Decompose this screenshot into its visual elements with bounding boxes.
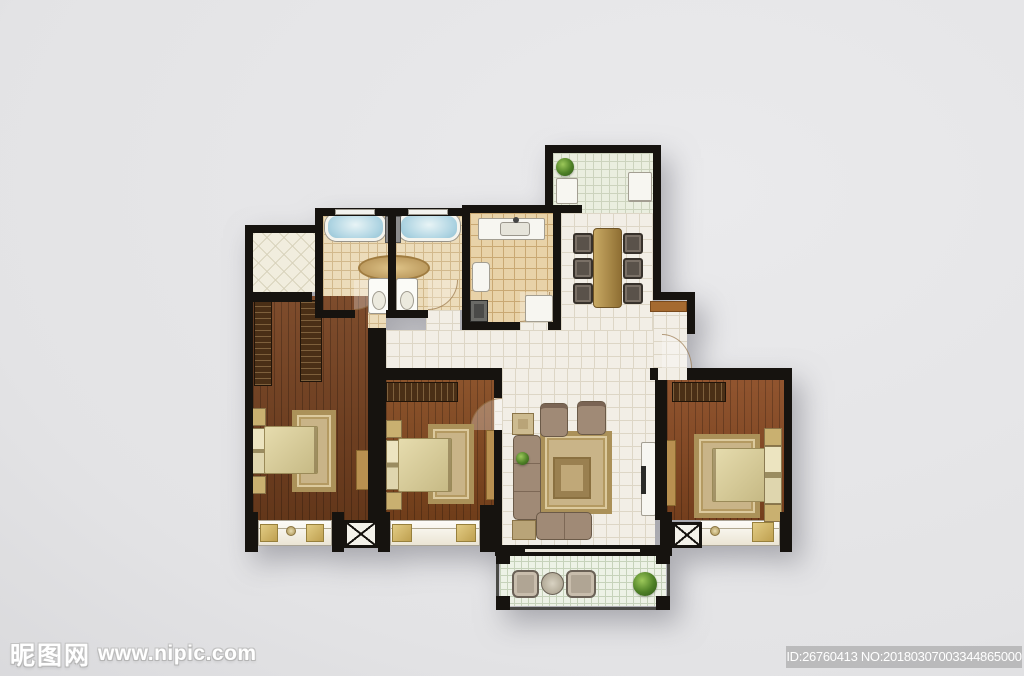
wall — [386, 310, 428, 318]
stock-image-page: { "watermarks": { "site_name": "昵图网", "s… — [0, 0, 1024, 676]
bed-icon — [712, 448, 766, 502]
bed-icon — [398, 438, 452, 492]
plant-icon — [516, 452, 529, 465]
site-watermark: 昵图网 www.nipic.com — [10, 636, 257, 672]
balcony-chair — [566, 570, 596, 598]
tv-icon — [641, 466, 646, 494]
kitchen-counter — [525, 295, 553, 322]
wall — [545, 145, 661, 153]
wall — [660, 512, 672, 552]
wall — [368, 328, 386, 522]
bathroom-window — [335, 209, 375, 215]
wall — [655, 380, 667, 520]
door-swing-icon — [662, 334, 692, 368]
entry-cabinet — [628, 172, 652, 202]
plant-icon — [633, 572, 657, 596]
wall — [480, 505, 502, 552]
wall — [245, 512, 258, 552]
wall — [462, 208, 470, 322]
wall — [332, 512, 344, 552]
wall — [378, 512, 390, 552]
floor-plan — [238, 143, 798, 621]
window-cushion — [752, 522, 774, 542]
stove-icon — [470, 300, 488, 322]
ac-platform-icon — [672, 522, 702, 548]
wardrobe — [672, 382, 726, 402]
nightstand — [764, 428, 782, 446]
side-table — [512, 520, 536, 540]
nightstand — [386, 420, 402, 438]
window-cushion — [260, 524, 278, 542]
balcony-corner — [496, 550, 510, 564]
window-ornament — [286, 526, 296, 536]
bed-pillows — [764, 446, 782, 504]
coffee-table — [553, 457, 591, 499]
wall — [650, 368, 658, 380]
balcony-corner — [656, 596, 670, 610]
entry-cabinet — [556, 178, 578, 204]
wall — [553, 213, 561, 322]
wall — [245, 292, 312, 302]
bathroom-window — [408, 209, 448, 215]
side-table — [512, 413, 534, 435]
balcony-corner — [496, 596, 510, 610]
dining-chair — [573, 258, 593, 279]
bed-icon — [264, 426, 318, 474]
sofa-icon — [513, 435, 541, 520]
fridge — [472, 262, 490, 292]
toilet-icon — [368, 278, 390, 314]
shoe-cabinet — [650, 301, 687, 312]
plant-icon — [556, 158, 574, 176]
image-id-watermark: ID:26760413 NO:20180307003344865000 — [786, 646, 1022, 668]
window-cushion — [306, 524, 324, 542]
sink-icon — [500, 222, 530, 236]
wall — [388, 208, 396, 318]
balcony-chair — [512, 570, 539, 598]
dining-table-icon — [593, 228, 622, 308]
wardrobe — [386, 382, 458, 402]
wall — [462, 205, 553, 213]
site-url-text: www.nipic.com — [98, 642, 257, 666]
balcony-corner — [656, 550, 670, 564]
wall — [245, 225, 253, 552]
hallway-floor — [386, 330, 653, 370]
bathtub-icon — [325, 213, 386, 241]
wall — [245, 225, 322, 233]
site-logo: 昵图网 — [10, 636, 91, 672]
sofa-icon — [536, 512, 592, 540]
wardrobe — [254, 300, 272, 386]
window-cushion — [392, 524, 412, 542]
nightstand — [386, 492, 402, 510]
window-cushion — [456, 524, 476, 542]
dining-chair — [573, 233, 593, 254]
wall — [687, 292, 695, 334]
armchair — [577, 401, 606, 435]
wall — [548, 322, 561, 330]
wall — [687, 368, 792, 380]
bathroom-2-door-floor — [426, 310, 460, 330]
wall — [545, 145, 553, 213]
armchair — [540, 403, 568, 437]
faucet-icon — [513, 217, 519, 223]
bathtub-icon — [398, 213, 460, 241]
wall — [780, 512, 792, 552]
wall — [462, 322, 520, 330]
storage-room-floor — [253, 233, 315, 292]
dining-chair — [623, 258, 643, 279]
balcony-door-glass — [525, 549, 640, 552]
toilet-icon — [396, 278, 418, 314]
dining-chair — [623, 233, 643, 254]
ac-platform-icon — [344, 520, 378, 548]
wall — [378, 368, 502, 380]
dining-chair — [573, 283, 593, 304]
balcony-table — [541, 572, 564, 595]
wall — [653, 145, 661, 295]
dining-chair — [623, 283, 643, 304]
wall — [494, 380, 502, 398]
wall — [315, 216, 323, 318]
window-ornament — [710, 526, 720, 536]
wall — [315, 310, 355, 318]
kitchen-door-floor — [520, 322, 548, 330]
